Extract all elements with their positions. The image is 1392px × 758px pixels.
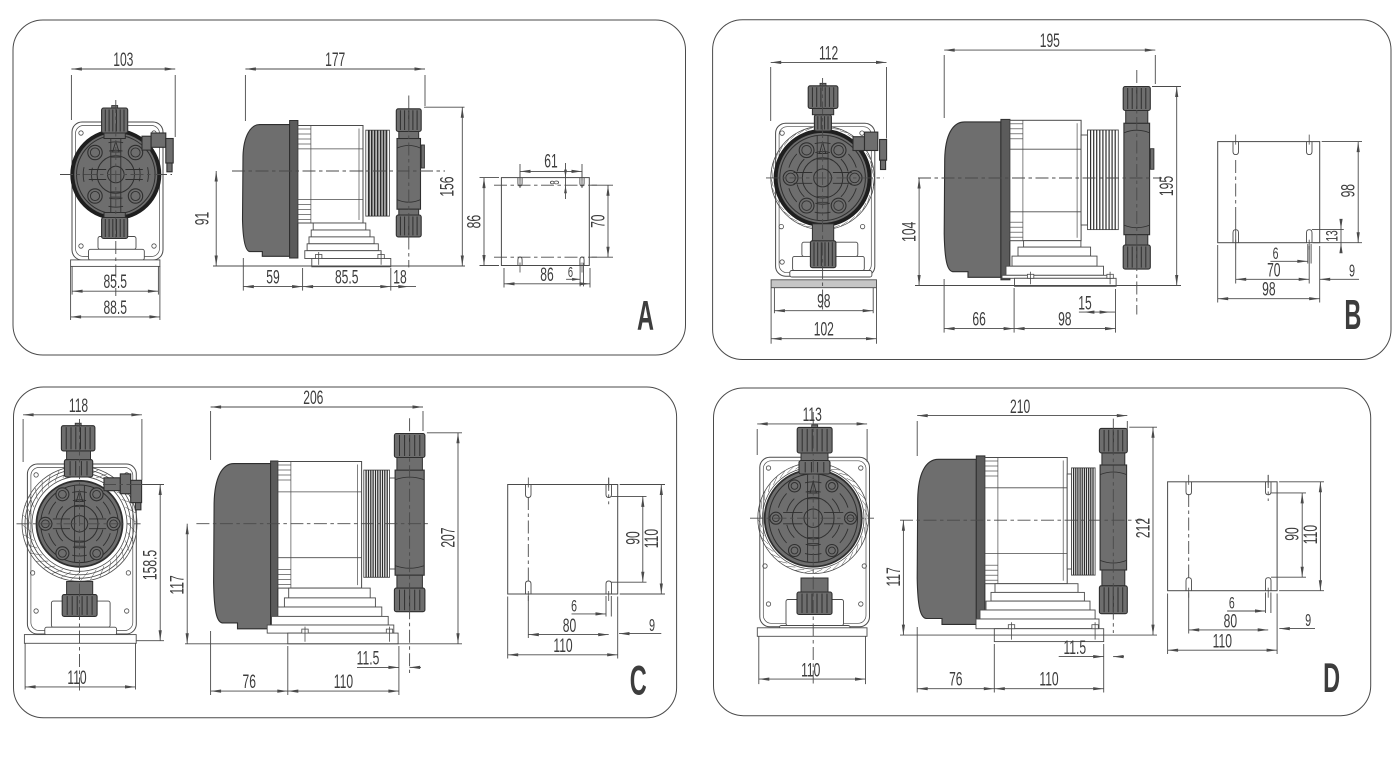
svg-text:195: 195: [1040, 30, 1060, 52]
svg-text:98: 98: [1058, 309, 1071, 331]
svg-text:98: 98: [1338, 184, 1360, 197]
svg-text:70: 70: [1267, 259, 1280, 281]
svg-text:210: 210: [1010, 396, 1030, 418]
svg-text:80: 80: [563, 615, 576, 637]
svg-text:110: 110: [801, 660, 820, 682]
svg-text:110: 110: [67, 667, 86, 689]
svg-text:C: C: [630, 658, 647, 705]
svg-text:110: 110: [641, 529, 663, 548]
svg-text:104: 104: [899, 222, 921, 242]
svg-text:110: 110: [1213, 631, 1232, 653]
svg-text:98: 98: [1262, 279, 1275, 301]
svg-text:102: 102: [814, 319, 834, 341]
svg-text:11.5: 11.5: [1063, 637, 1086, 659]
svg-text:98: 98: [817, 291, 830, 313]
svg-text:195: 195: [1156, 176, 1178, 196]
svg-text:18: 18: [393, 267, 406, 289]
svg-text:6: 6: [568, 264, 573, 281]
svg-text:B: B: [1344, 292, 1361, 339]
svg-text:59: 59: [266, 267, 279, 289]
svg-text:6: 6: [571, 596, 577, 615]
svg-text:76: 76: [949, 669, 962, 691]
svg-text:D: D: [1323, 655, 1340, 702]
svg-text:66: 66: [972, 309, 985, 331]
svg-text:156: 156: [437, 177, 459, 197]
svg-text:6: 6: [1229, 593, 1235, 612]
svg-text:86: 86: [540, 264, 553, 286]
svg-text:11.5: 11.5: [357, 648, 380, 670]
svg-text:8: 8: [549, 180, 562, 184]
svg-text:61: 61: [544, 151, 557, 173]
svg-text:9: 9: [1305, 612, 1311, 631]
svg-text:70: 70: [588, 214, 610, 227]
svg-text:117: 117: [883, 567, 905, 586]
svg-text:80: 80: [1224, 611, 1237, 633]
svg-text:117: 117: [167, 575, 189, 594]
svg-text:86: 86: [464, 215, 486, 228]
svg-text:9: 9: [1349, 262, 1355, 281]
svg-text:113: 113: [803, 404, 822, 426]
svg-text:A: A: [637, 293, 654, 340]
svg-text:118: 118: [69, 395, 88, 417]
svg-text:76: 76: [242, 671, 255, 693]
svg-text:212: 212: [1133, 518, 1155, 538]
svg-text:91: 91: [192, 212, 214, 225]
svg-text:110: 110: [334, 671, 353, 693]
svg-text:112: 112: [819, 43, 838, 65]
svg-text:9: 9: [649, 617, 655, 636]
svg-text:15: 15: [1078, 293, 1091, 315]
svg-text:88.5: 88.5: [103, 297, 127, 319]
svg-text:85.5: 85.5: [335, 267, 359, 289]
svg-text:110: 110: [553, 635, 572, 657]
svg-text:206: 206: [303, 387, 323, 409]
svg-text:103: 103: [113, 49, 133, 71]
svg-text:110: 110: [1039, 669, 1058, 691]
svg-text:13: 13: [1323, 230, 1341, 242]
svg-text:110: 110: [1300, 525, 1322, 544]
svg-text:177: 177: [325, 49, 345, 71]
svg-text:207: 207: [438, 528, 460, 548]
svg-text:158.5: 158.5: [140, 550, 162, 580]
svg-text:85.5: 85.5: [103, 271, 127, 293]
